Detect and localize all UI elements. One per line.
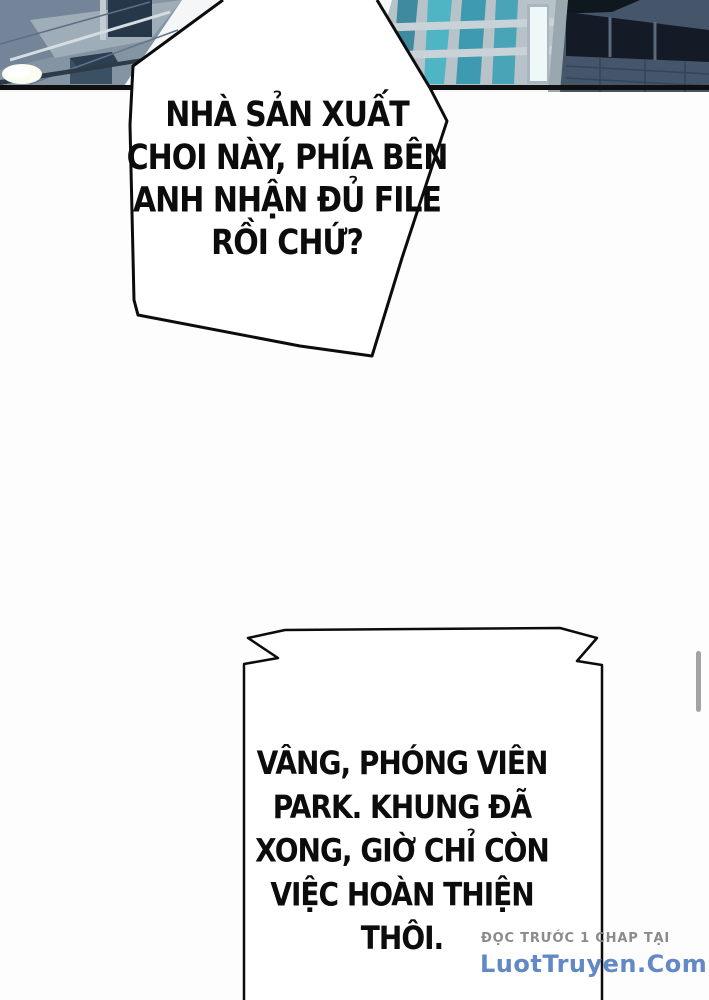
bubble2-line: VÂNG, PHÓNG VIÊN — [252, 742, 552, 786]
bubble2-line: XONG, GIỜ CHỈ CÒN — [252, 829, 552, 873]
watermark-tagline: ĐỌC TRƯỚC 1 CHAP TẠI — [468, 931, 683, 946]
comic-page: NHÀ SẢN XUẤT CHOI NÀY, PHÍA BÊN ANH NHẬN… — [0, 0, 709, 1000]
bubble1-line: ANH NHẬN ĐỦ FILE — [122, 179, 452, 222]
bubble1-line: NHÀ SẢN XUẤT — [122, 94, 452, 137]
bubble2-text: VÂNG, PHÓNG VIÊN PARK. KHUNG ĐÃ XONG, GI… — [252, 742, 552, 961]
bubble1-line: CHOI NÀY, PHÍA BÊN — [122, 137, 452, 180]
watermark-site-name: LuotTruyen.Com — [480, 950, 685, 978]
scrollbar-thumb[interactable] — [696, 651, 701, 712]
bubble1-line: RỒI CHỨ? — [122, 222, 452, 265]
bubble2-line: PARK. KHUNG ĐÃ — [252, 786, 552, 830]
bubble2-line: VIỆC HOÀN THIỆN — [252, 873, 552, 917]
bubble1-text: NHÀ SẢN XUẤT CHOI NÀY, PHÍA BÊN ANH NHẬN… — [122, 94, 452, 264]
